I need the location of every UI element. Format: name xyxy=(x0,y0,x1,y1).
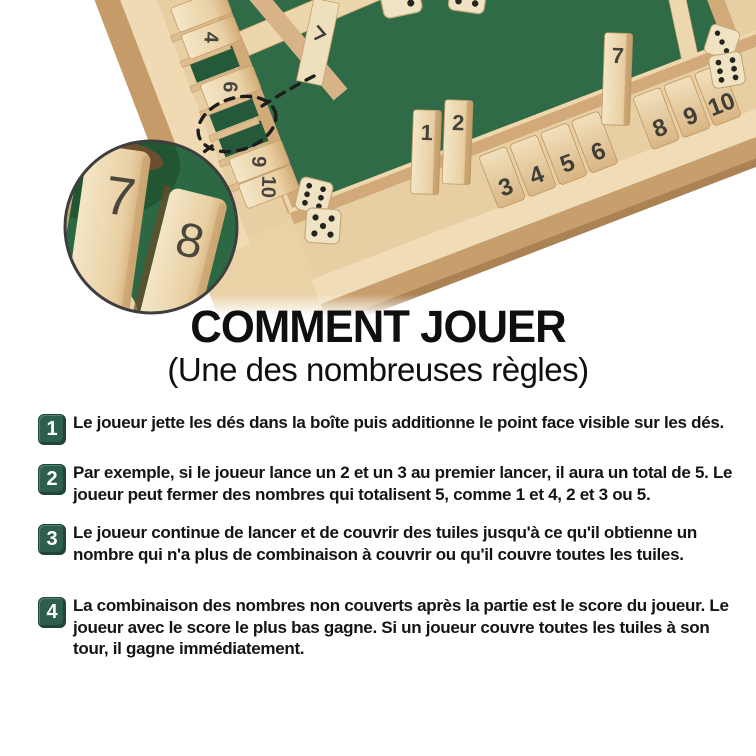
instruction-step-2: 2 Par exemple, si le joueur lance un 2 e… xyxy=(38,462,746,505)
tile-2: 2 xyxy=(442,100,473,185)
step-text: Par exemple, si le joueur lance un 2 et … xyxy=(73,462,746,505)
instruction-step-4: 4 La combinaison des nombres non couvert… xyxy=(38,595,746,660)
step-text: Le joueur continue de lancer et de couvr… xyxy=(73,522,746,565)
step-number-badge: 3 xyxy=(38,524,66,555)
tile-number: 2 xyxy=(452,110,465,135)
tile-number: 4 xyxy=(199,31,221,44)
step-number-badge: 1 xyxy=(38,414,66,445)
die-icon xyxy=(305,208,342,245)
die-icon xyxy=(708,51,746,89)
instructions-list: 1 Le joueur jette les dés dans la boîte … xyxy=(0,412,756,660)
tile-number: 1 xyxy=(420,120,433,145)
instruction-step-1: 1 Le joueur jette les dés dans la boîte … xyxy=(38,412,746,445)
tile-7: 7 xyxy=(602,33,633,126)
step-number-badge: 2 xyxy=(38,464,66,495)
product-photo: 4 6 9 10 xyxy=(0,0,756,316)
tile-number: 6 xyxy=(218,81,240,93)
instruction-step-3: 3 Le joueur continue de lancer et de cou… xyxy=(38,522,746,565)
step-text: Le joueur jette les dés dans la boîte pu… xyxy=(73,412,724,434)
step-text: La combinaison des nombres non couverts … xyxy=(73,595,746,660)
page-title: COMMENT JOUER xyxy=(11,304,744,349)
instruction-sheet: 4 6 9 10 xyxy=(0,0,756,756)
tile-number: 10 xyxy=(257,175,280,198)
tile-number: 9 xyxy=(247,156,269,168)
tile-number: 7 xyxy=(611,43,624,68)
tile-1: 1 xyxy=(411,110,442,195)
board-photo-illustration: 4 6 9 10 xyxy=(0,0,756,316)
page-subtitle: (Une des nombreuses règles) xyxy=(0,352,756,388)
step-number-badge: 4 xyxy=(38,597,66,628)
title-block: COMMENT JOUER (Une des nombreuses règles… xyxy=(0,304,756,388)
